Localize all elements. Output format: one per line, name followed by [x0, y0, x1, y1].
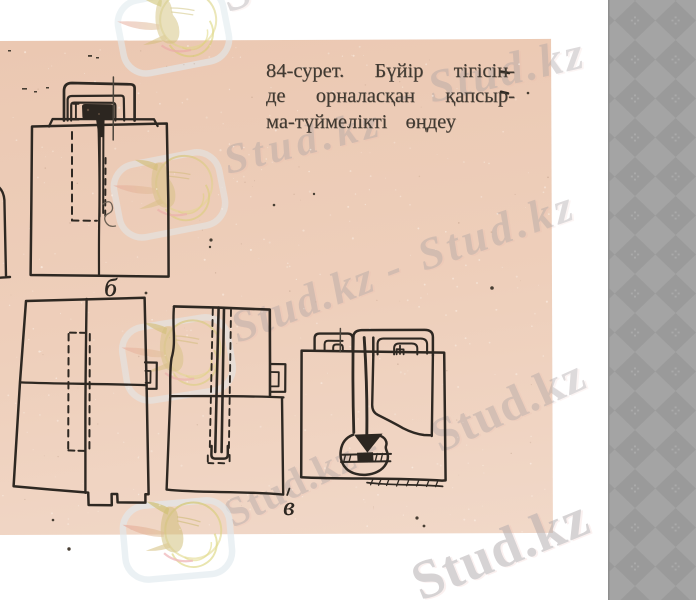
svg-text:в: в	[283, 492, 294, 521]
